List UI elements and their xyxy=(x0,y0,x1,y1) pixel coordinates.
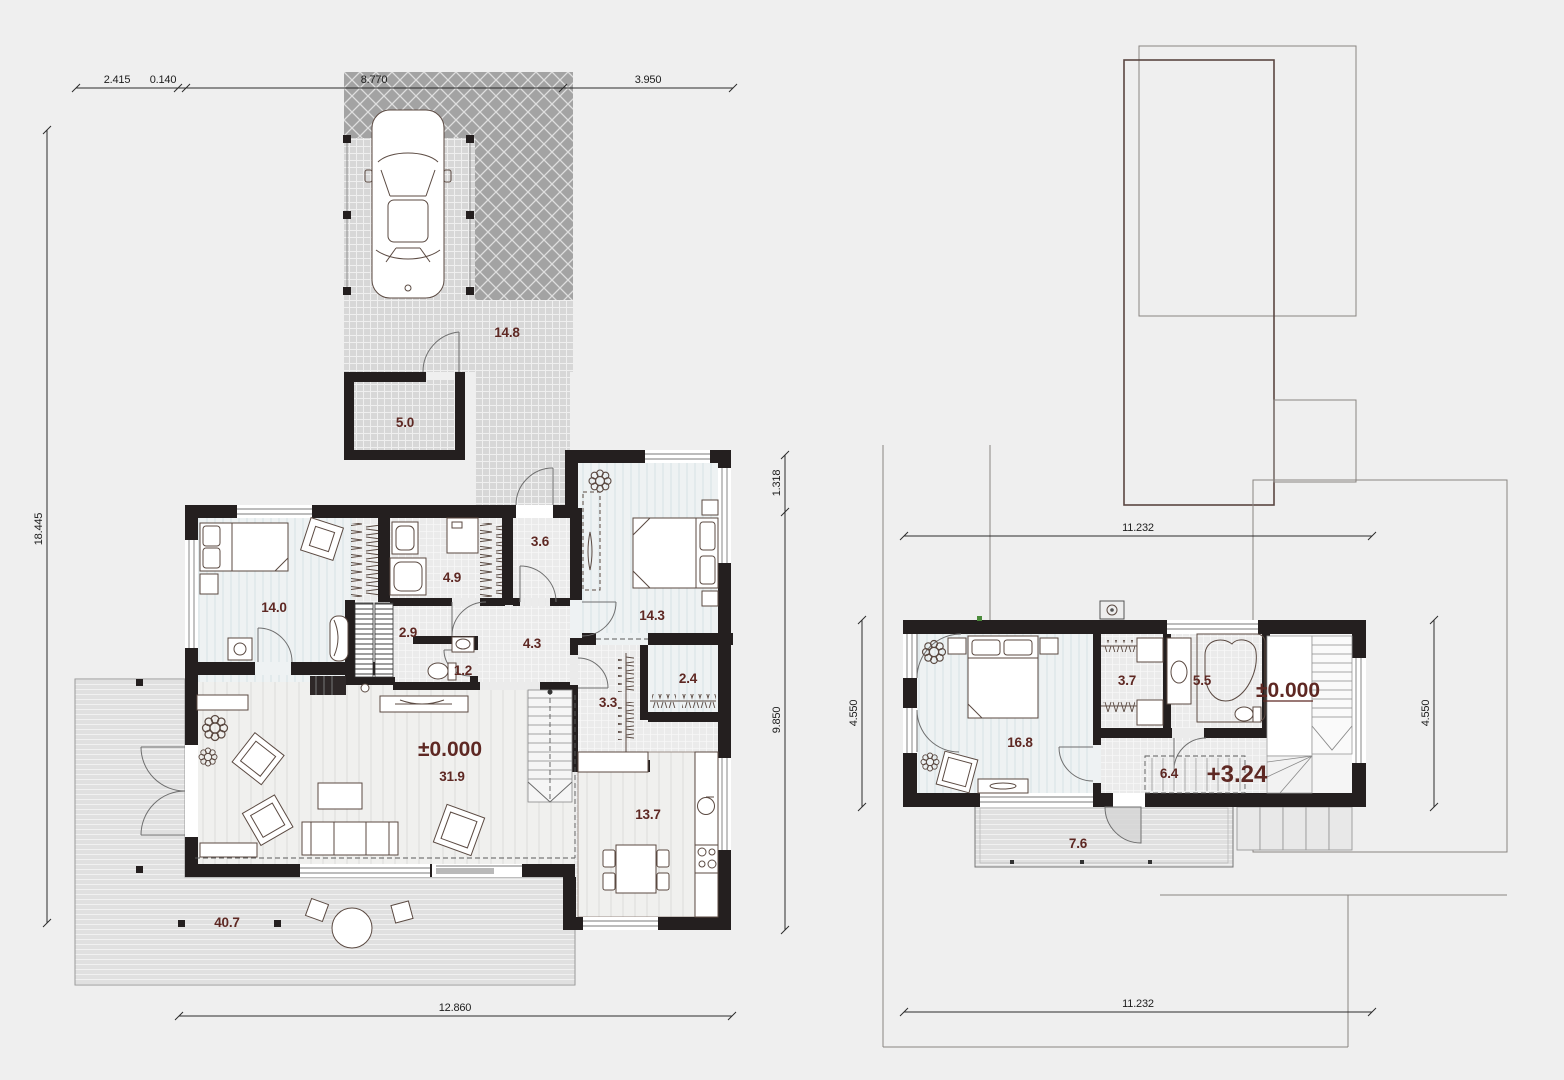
dim-label: 9.850 xyxy=(771,707,783,734)
level-label-upper-hall: +3.24 xyxy=(1207,761,1268,788)
dim-bottom: 12.860 xyxy=(175,1002,736,1020)
dim-left: 18.445 xyxy=(33,126,51,927)
room-label-kitchen: 13.7 xyxy=(635,807,660,822)
room-label-bedroom2: 14.3 xyxy=(639,608,665,623)
room-label-wardrobe: 3.3 xyxy=(599,695,618,710)
room-label-terrace: 40.7 xyxy=(214,915,239,930)
room-label-entry: 3.6 xyxy=(531,534,550,549)
dim-right: 1.318 9.850 xyxy=(771,451,789,934)
chimney-icon xyxy=(1100,601,1124,619)
plan-drawing: 14.0 4.9 2.9 1.2 3.6 4.3 14.3 2.4 3.3 ±0… xyxy=(0,0,1564,1080)
dim-label: 1.318 xyxy=(771,470,783,497)
dim-label: 3.950 xyxy=(635,74,662,86)
dim-label: 8.770 xyxy=(361,74,388,86)
dim-label: 4.550 xyxy=(1420,700,1432,727)
room-label-stair-hall: 2.9 xyxy=(399,625,417,640)
dim-label: 4.550 xyxy=(848,700,860,727)
roof-outlines xyxy=(883,46,1507,1047)
room-label-closet: 2.4 xyxy=(679,671,698,686)
dim-upper-right: 4.550 xyxy=(1420,616,1438,811)
level-label-living: ±0.000 xyxy=(418,738,482,761)
dim-label: 2.415 xyxy=(104,74,131,86)
room-label-balcony: 7.6 xyxy=(1069,836,1088,851)
dim-label: 12.860 xyxy=(439,1002,472,1014)
room-label-driveway: 14.8 xyxy=(494,325,520,340)
level-label-stairwell: ±0.000 xyxy=(1256,679,1320,702)
main-stairs xyxy=(528,690,572,803)
room-label-wc: 1.2 xyxy=(454,663,472,678)
dim-label: 11.232 xyxy=(1122,998,1154,1010)
ground-floor-plan: 14.0 4.9 2.9 1.2 3.6 4.3 14.3 2.4 3.3 ±0… xyxy=(33,72,789,1020)
upper-floor-plan: 16.8 3.7 5.5 6.4 +3.24 ±0.000 7.6 11.232… xyxy=(848,46,1507,1047)
dim-label: 18.445 xyxy=(33,513,45,546)
dim-label: 11.232 xyxy=(1122,522,1154,534)
room-label-living: 31.9 xyxy=(439,769,464,784)
room-label-bedroom1: 14.0 xyxy=(261,600,286,615)
dim-upper-left: 4.550 xyxy=(848,616,866,811)
terrace-table xyxy=(332,908,372,948)
survey-marker xyxy=(977,616,982,621)
dim-upper-top: 11.232 xyxy=(900,522,1376,540)
room-label-upper-hall: 6.4 xyxy=(1160,766,1179,781)
room-label-hall: 4.3 xyxy=(523,636,542,651)
roof-panels xyxy=(1237,807,1352,850)
room-label-bathroom: 5.5 xyxy=(1193,673,1212,688)
dim-label: 0.140 xyxy=(150,74,177,86)
room-label-upper-bedroom: 16.8 xyxy=(1007,735,1033,750)
dim-upper-bottom: 11.232 xyxy=(900,998,1376,1016)
room-label-porch: 5.0 xyxy=(396,415,414,430)
floor-plan-sheet: 14.0 4.9 2.9 1.2 3.6 4.3 14.3 2.4 3.3 ±0… xyxy=(0,0,1564,1080)
balcony xyxy=(975,805,1233,867)
room-label-utility: 4.9 xyxy=(443,570,461,585)
car-icon xyxy=(365,110,451,298)
room-label-upper-wardrobe: 3.7 xyxy=(1118,673,1136,688)
